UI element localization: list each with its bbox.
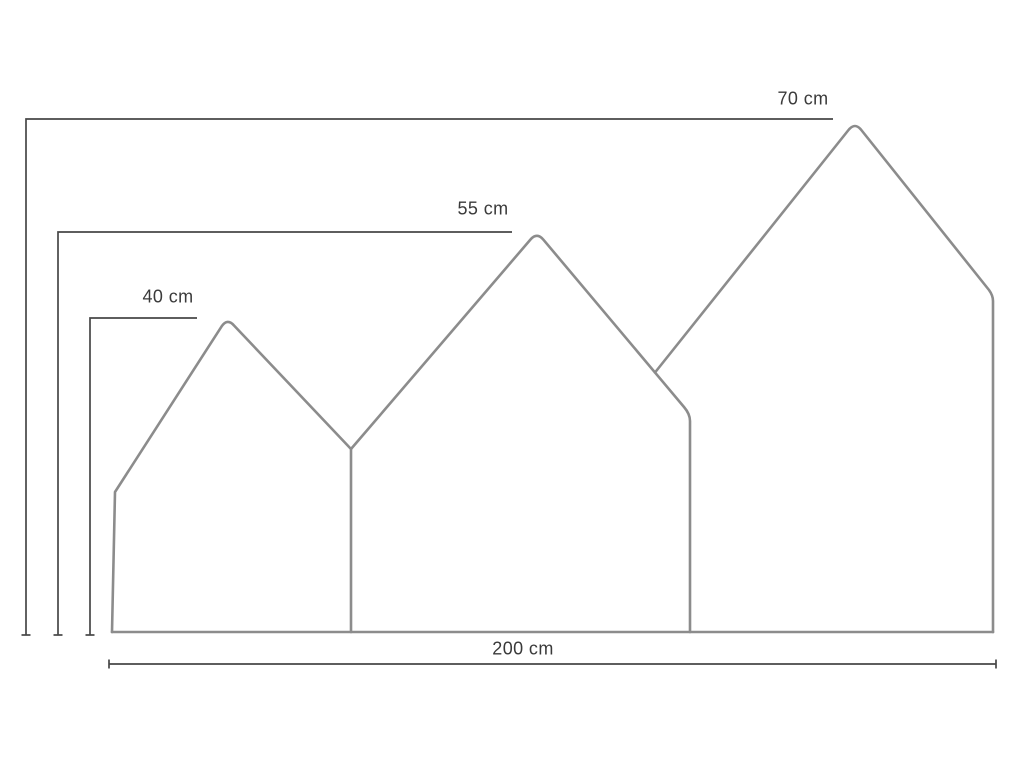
panel-large-outline <box>655 126 993 632</box>
panel-small-outline <box>112 322 351 632</box>
dimension-line-70cm <box>26 119 833 635</box>
label-height-large: 70 cm <box>777 89 828 110</box>
dimension-line-40cm <box>90 318 197 635</box>
dimension-lines <box>22 119 997 669</box>
label-width-total: 200 cm <box>492 639 553 660</box>
dimension-line-55cm <box>58 232 512 635</box>
dimension-diagram: 70 cm 55 cm 40 cm 200 cm <box>0 0 1024 768</box>
panel-outlines <box>112 126 993 632</box>
panel-medium-outline <box>351 236 690 632</box>
label-height-small: 40 cm <box>142 287 193 308</box>
label-height-medium: 55 cm <box>457 199 508 220</box>
